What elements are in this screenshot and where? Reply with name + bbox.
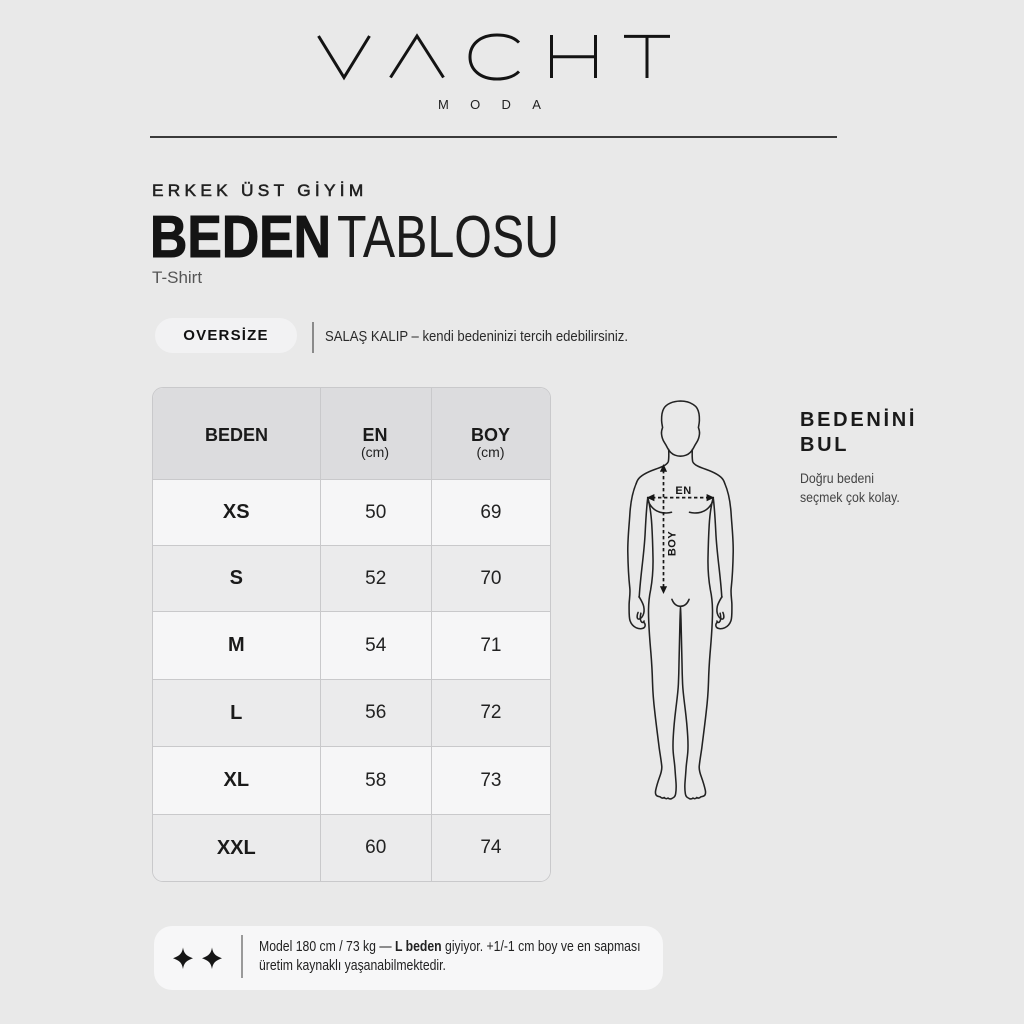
svg-text:EN: EN [675, 485, 691, 497]
svg-text:BOY: BOY [667, 531, 679, 557]
